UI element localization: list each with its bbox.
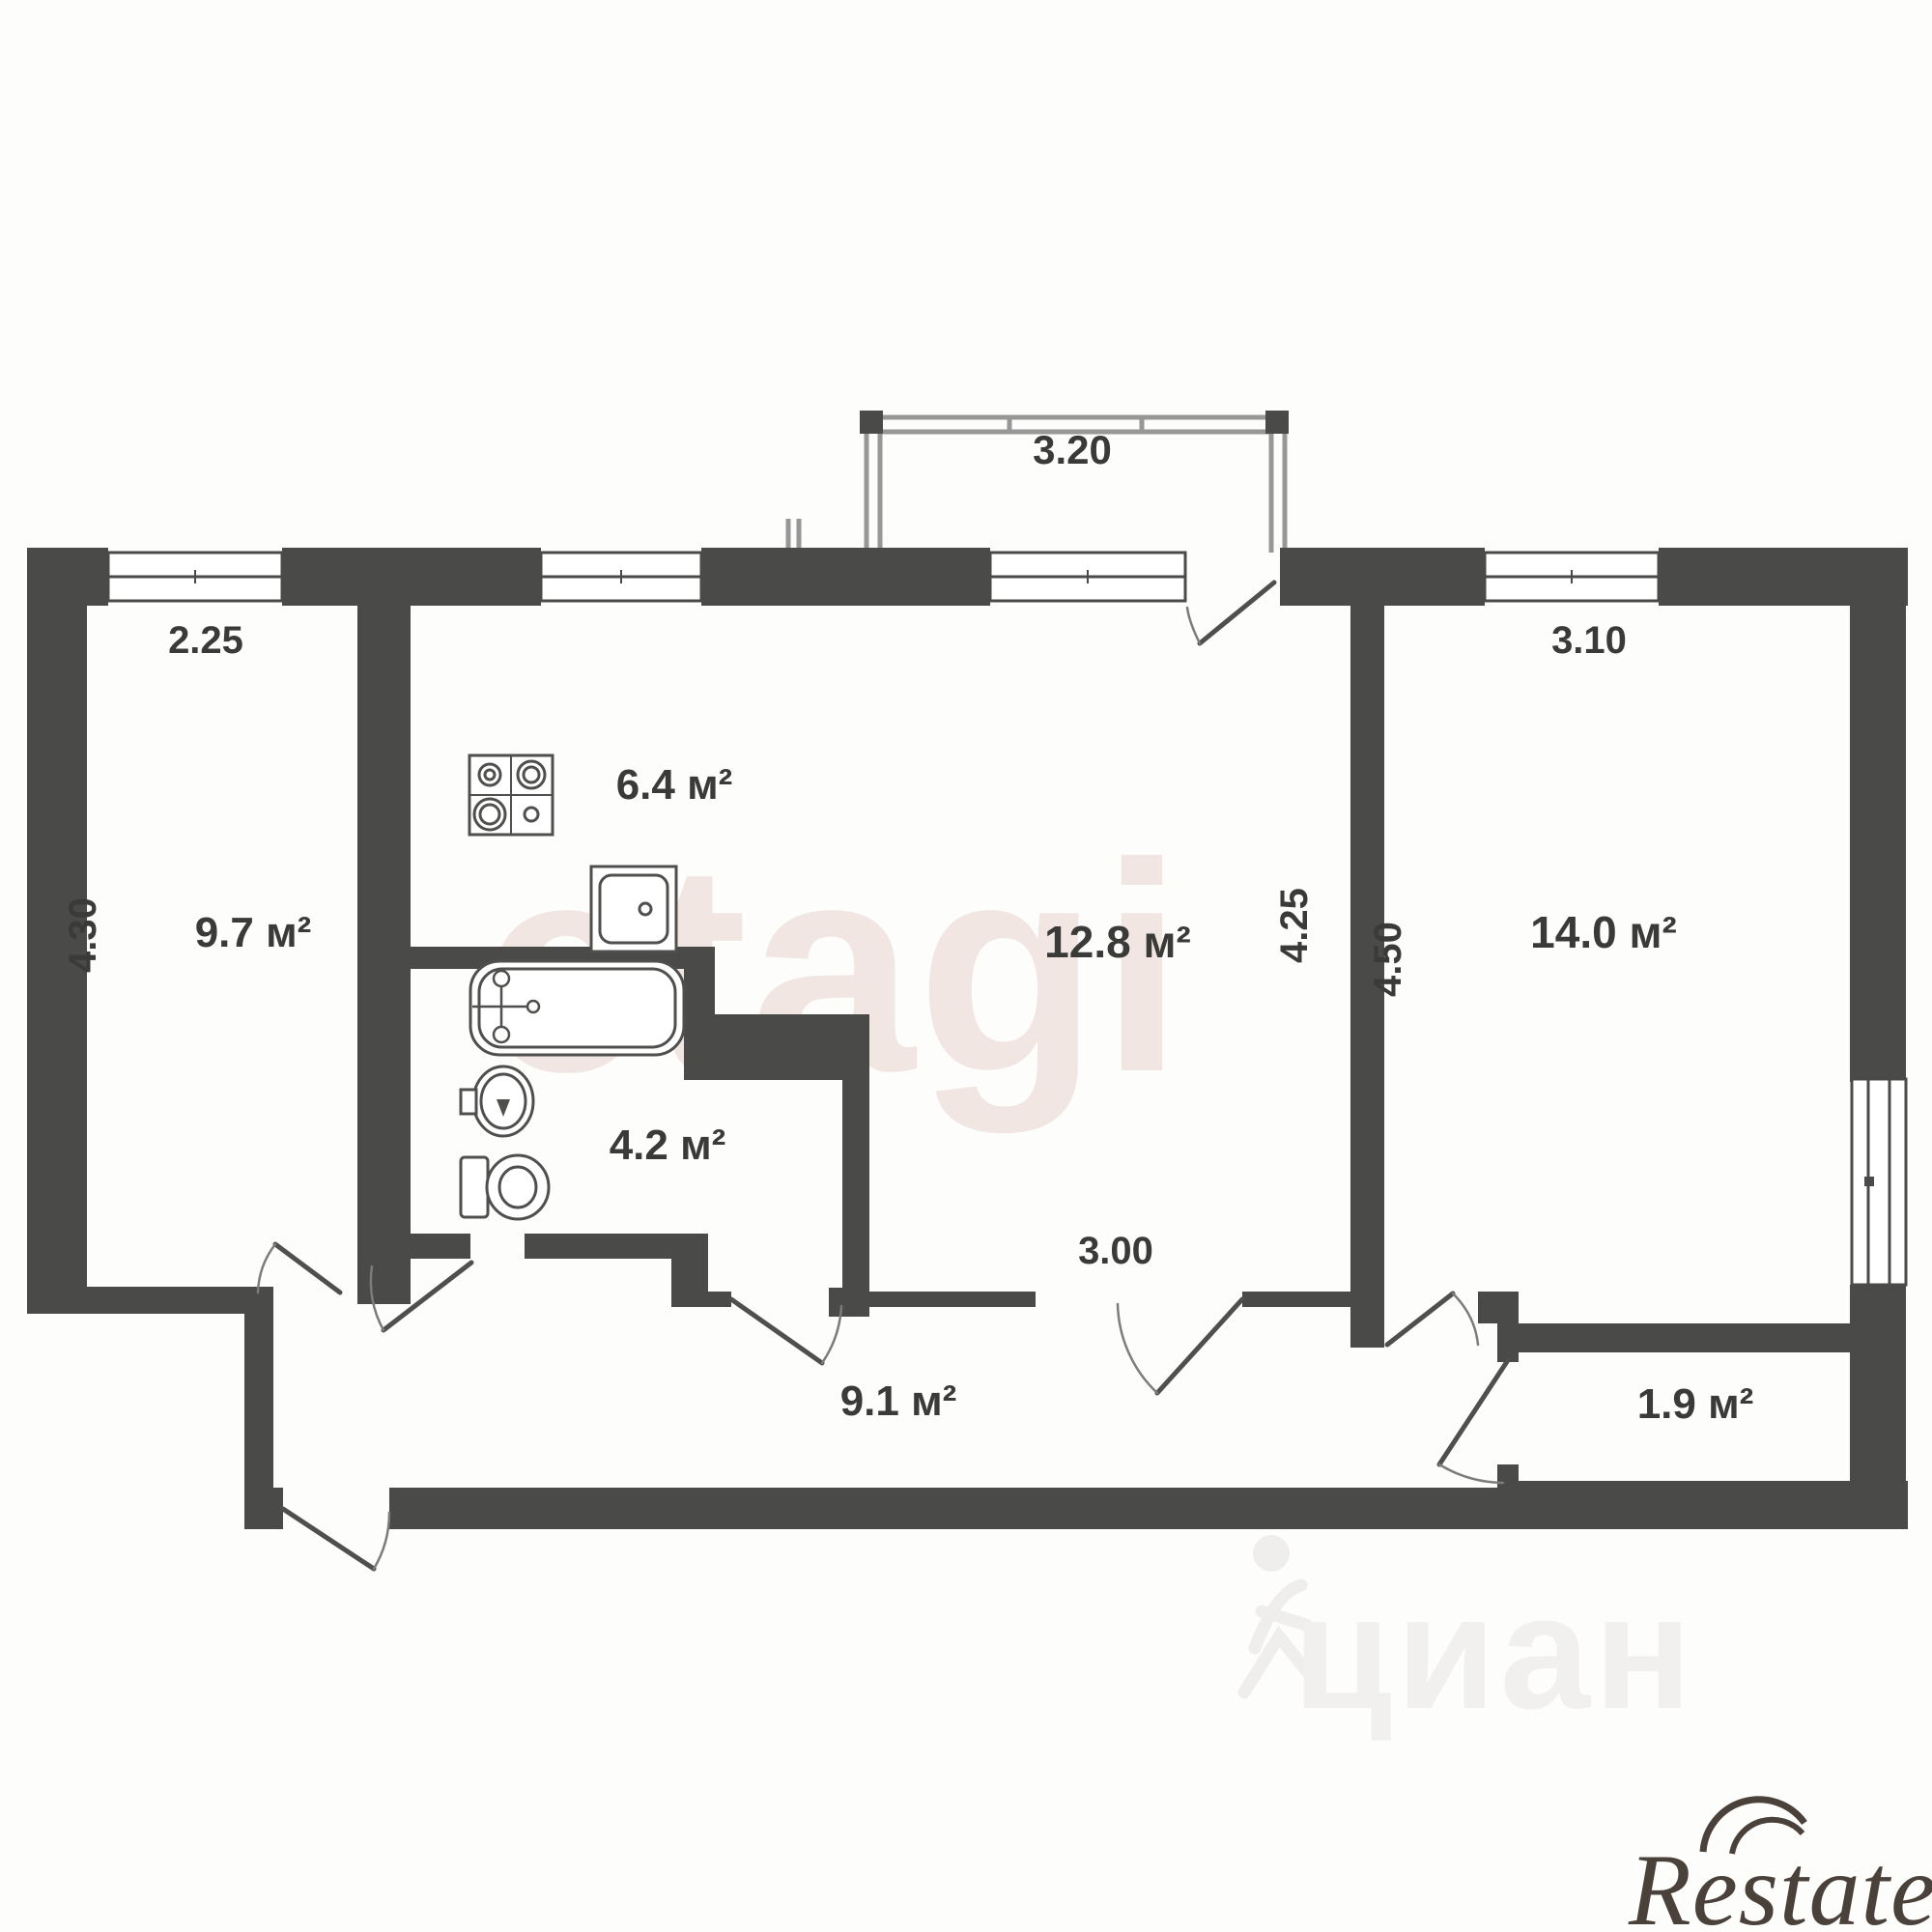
watermark-cian: циан (1244, 1535, 1695, 1743)
window-right-room (1485, 553, 1659, 601)
window-left-room (108, 553, 282, 601)
svg-text:Restate: Restate (1628, 1833, 1932, 1932)
bathtub-icon (470, 961, 684, 1055)
floor-plan-drawing: etagi циан (0, 0, 1932, 1932)
wall-leftroom-kitchen (357, 606, 411, 1304)
door-right-room (1387, 1293, 1478, 1345)
wall-leftroom-bottom (27, 1287, 273, 1314)
window-right-niche (1852, 1079, 1906, 1285)
balcony-corner-post (1265, 411, 1289, 434)
wall-bath-south (525, 1234, 674, 1259)
right-room-height-label: 4.50 (1367, 922, 1409, 997)
closet-area-label: 1.9 м² (1637, 1380, 1754, 1428)
toilet-icon (461, 1155, 549, 1219)
window-kitchen (541, 553, 701, 601)
wall-hall-top (1242, 1292, 1350, 1307)
wall-closet-top (1497, 1323, 1850, 1352)
left-room-width-label: 2.25 (168, 619, 243, 662)
logo-restate: Restate (1628, 1800, 1932, 1932)
kitchen-area-label: 6.4 м² (616, 761, 733, 809)
living-area-label: 12.8 м² (1044, 917, 1191, 967)
left-room-area-label: 9.7 м² (195, 909, 312, 956)
right-room-area-label: 14.0 м² (1530, 907, 1677, 957)
wall-segment (1280, 548, 1485, 606)
svg-text:циан: циан (1293, 1561, 1695, 1743)
wash-basin-icon (461, 1066, 533, 1136)
wall-bath-east (684, 947, 715, 1014)
window-living (990, 553, 1185, 601)
door-entrance (283, 1509, 389, 1569)
wall-bath-step (671, 1234, 708, 1307)
wall-segment (701, 548, 990, 606)
wall-rightroom-south (1478, 1292, 1519, 1323)
living-height-label: 4.25 (1273, 888, 1316, 963)
door-balcony (1187, 582, 1274, 643)
wall-bottom (1497, 1481, 1908, 1529)
wall-bath-living-connector (684, 1014, 869, 1080)
bathroom-area-label: 4.2 м² (610, 1122, 726, 1169)
door-closet (1439, 1360, 1508, 1483)
wall-closet-west (1497, 1323, 1519, 1362)
neighbor-balcony-stub (788, 519, 799, 548)
wall-living-rightroom-foot (1350, 1292, 1384, 1348)
wall-hall-top (869, 1292, 1036, 1307)
wall-right-outer (1850, 548, 1906, 1082)
living-width-label: 3.00 (1078, 1230, 1153, 1272)
balcony-width-label: 3.20 (1033, 427, 1112, 472)
kitchen-sink-icon (591, 867, 676, 952)
wall-bottom (244, 1488, 283, 1529)
left-room-height-label: 4.30 (62, 897, 104, 973)
wall-living-west-foot (829, 1288, 869, 1317)
wall-bath-south (399, 1234, 470, 1259)
balcony-corner-post (860, 411, 883, 434)
hallway-area-label: 9.1 м² (840, 1378, 957, 1425)
wall-segment (282, 548, 541, 606)
wall-bottom (389, 1488, 1497, 1529)
wall-living-west (842, 1080, 869, 1307)
floor-plan-canvas: etagi циан (0, 0, 1932, 1932)
stove-icon (469, 755, 553, 835)
door-living-alcove (731, 1299, 841, 1363)
right-room-width-label: 3.10 (1551, 619, 1627, 662)
door-left-room (258, 1244, 340, 1293)
door-living-hall (1118, 1299, 1242, 1393)
wall-sill (705, 1292, 731, 1307)
